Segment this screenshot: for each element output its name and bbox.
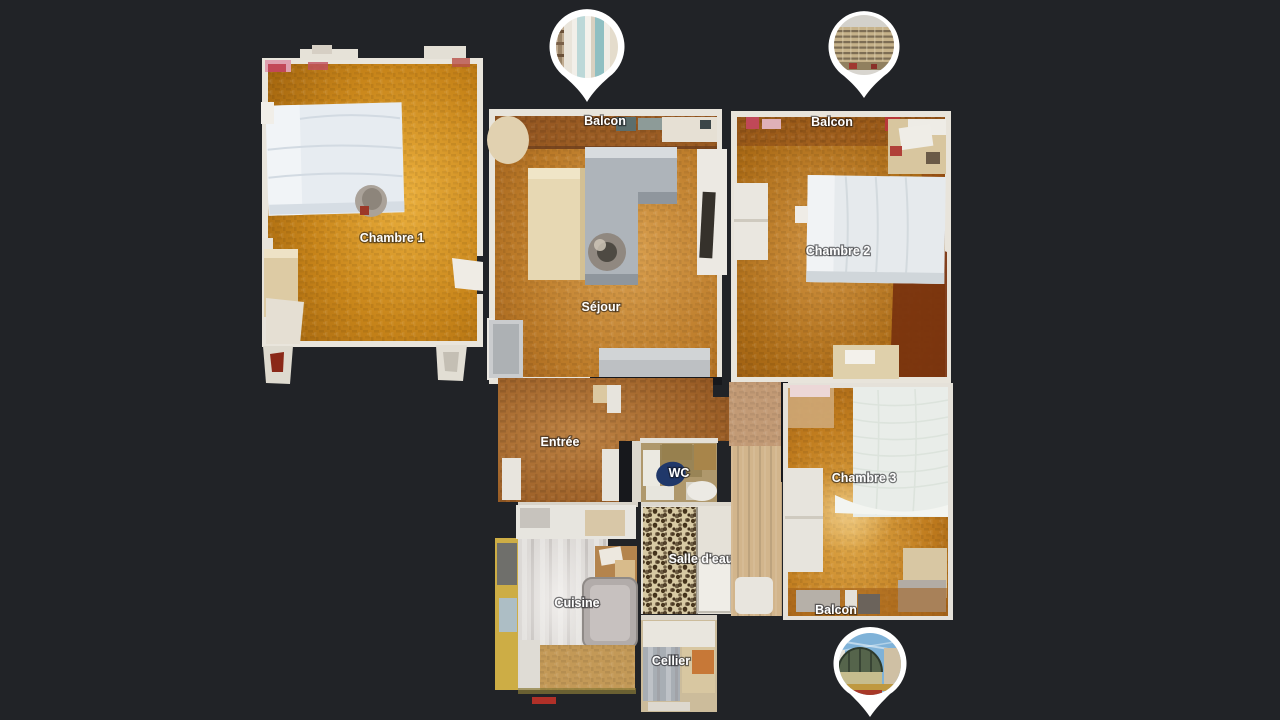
svg-text:Chambre 1: Chambre 1 bbox=[360, 231, 425, 245]
svg-text:WC: WC bbox=[669, 466, 690, 480]
svg-text:Entrée: Entrée bbox=[541, 435, 580, 449]
svg-text:Chambre 3: Chambre 3 bbox=[832, 471, 897, 485]
svg-text:Séjour: Séjour bbox=[582, 300, 621, 314]
svg-text:Chambre 2: Chambre 2 bbox=[806, 244, 871, 258]
svg-text:Salle d'eau: Salle d'eau bbox=[669, 552, 734, 566]
svg-text:Cuisine: Cuisine bbox=[554, 596, 599, 610]
svg-text:Balcon: Balcon bbox=[815, 603, 857, 617]
svg-text:Cellier: Cellier bbox=[652, 654, 690, 668]
svg-text:Balcon: Balcon bbox=[584, 114, 626, 128]
svg-text:Balcon: Balcon bbox=[811, 115, 853, 129]
